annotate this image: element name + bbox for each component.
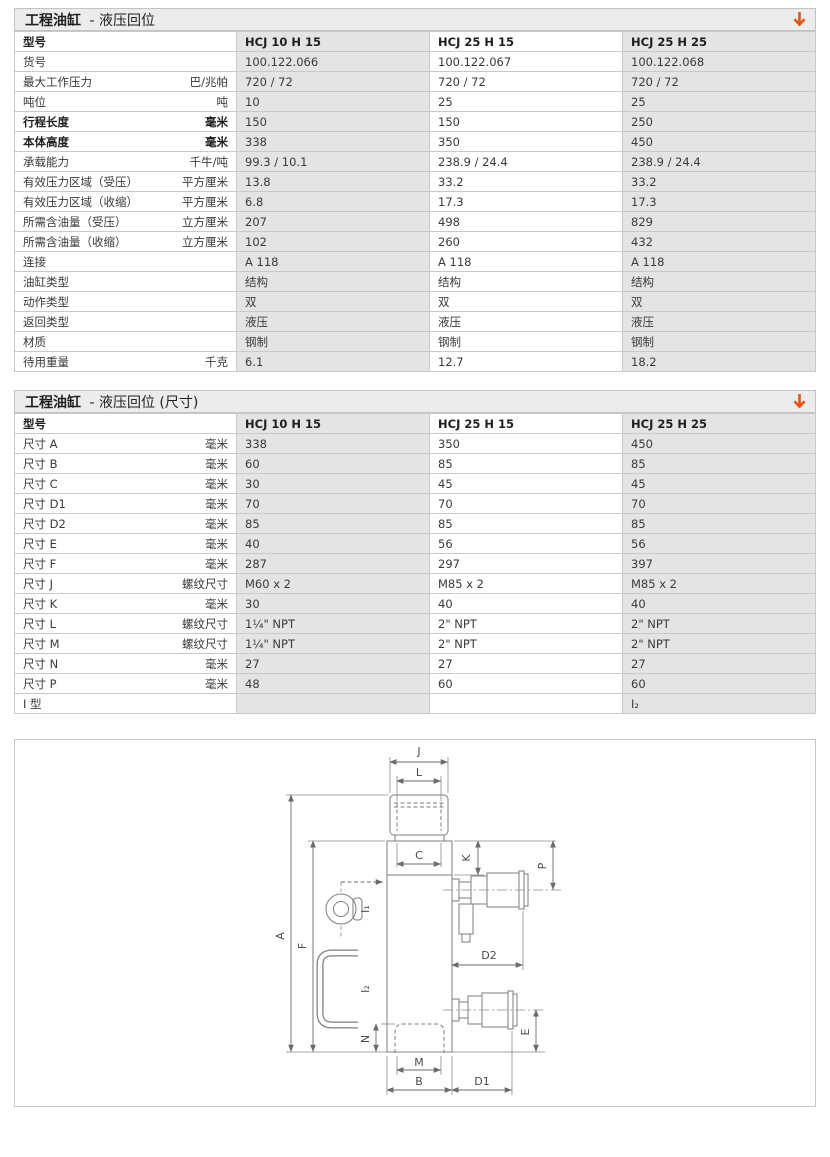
model-header-cell: 型号 [15, 414, 237, 434]
cell-value: 100.122.068 [623, 52, 816, 72]
cylinder-body [387, 841, 452, 1052]
column-header: HCJ 25 H 25 [623, 414, 816, 434]
spec-section: 工程油缸 - 液压回位 型号 HCJ 10 H 15 HCJ 25 H 15 H… [14, 8, 816, 372]
cell-value: 30 [237, 474, 430, 494]
cell-value: A 118 [430, 252, 623, 272]
table-row: 尺寸 N 毫米 27 27 27 [15, 654, 816, 674]
table-row: 本体高度 毫米 338 350 450 [15, 132, 816, 152]
row-label: 尺寸 L [23, 617, 56, 631]
cell-value: 85 [430, 514, 623, 534]
cell-value: 30 [237, 594, 430, 614]
cell-value: 60 [623, 674, 816, 694]
cell-value: 双 [237, 292, 430, 312]
dim-label-d1: D1 [474, 1075, 489, 1088]
cell-value: 结构 [237, 272, 430, 292]
cell-value: 338 [237, 132, 430, 152]
cell-value: 85 [430, 454, 623, 474]
cell-value: 498 [430, 212, 623, 232]
row-label: 尺寸 K [23, 597, 57, 611]
lifting-eye [326, 894, 356, 924]
column-header: HCJ 10 H 15 [237, 414, 430, 434]
row-label: 连接 [23, 255, 46, 269]
cell-value: 45 [430, 474, 623, 494]
table-row: 尺寸 D1 毫米 70 70 70 [15, 494, 816, 514]
row-unit: 毫米 [205, 476, 228, 492]
table-row: 尺寸 A 毫米 338 350 450 [15, 434, 816, 454]
upper-coupler [443, 871, 561, 942]
table-row: 油缸类型 结构 结构 结构 [15, 272, 816, 292]
cell-value: 双 [623, 292, 816, 312]
dim-label-d2: D2 [481, 949, 496, 962]
cell-value: 25 [430, 92, 623, 112]
row-unit: 千牛/吨 [190, 154, 228, 170]
row-unit: 毫米 [205, 656, 228, 672]
cell-value: 17.3 [623, 192, 816, 212]
section-title-product: 工程油缸 [25, 13, 81, 29]
cell-value: 33.2 [430, 172, 623, 192]
table-row: 货号 100.122.066 100.122.067 100.122.068 [15, 52, 816, 72]
cell-value: A 118 [237, 252, 430, 272]
table-row: 连接 A 118 A 118 A 118 [15, 252, 816, 272]
section-title-bar: 工程油缸 - 液压回位 (尺寸) [14, 390, 816, 413]
table-header-row: 型号 HCJ 10 H 15 HCJ 25 H 15 HCJ 25 H 25 [15, 414, 816, 434]
cell-value: 钢制 [237, 332, 430, 352]
column-header: HCJ 10 H 15 [237, 32, 430, 52]
row-unit: 毫米 [205, 676, 228, 692]
dim-label-e: E [519, 1028, 532, 1035]
cell-value: 10 [237, 92, 430, 112]
cell-value: 33.2 [623, 172, 816, 192]
cell-value: 27 [237, 654, 430, 674]
base-thread-hidden [395, 1024, 444, 1053]
dim-label-f: F [296, 943, 309, 949]
row-label: 尺寸 A [23, 437, 58, 451]
cell-value: 70 [623, 494, 816, 514]
row-unit: 毫米 [205, 516, 228, 532]
dim-label-p: P [536, 862, 549, 869]
dimension-lines: J L C K P [274, 745, 556, 1095]
table-row: 尺寸 M 螺纹尺寸 1¼" NPT 2" NPT 2" NPT [15, 634, 816, 654]
cell-value: 250 [623, 112, 816, 132]
row-label: 材质 [23, 335, 46, 349]
table-header-row: 型号 HCJ 10 H 15 HCJ 25 H 15 HCJ 25 H 25 [15, 32, 816, 52]
column-header: HCJ 25 H 15 [430, 32, 623, 52]
dim-label-c: C [415, 849, 423, 862]
cell-value: 100.122.067 [430, 52, 623, 72]
cell-value: 6.8 [237, 192, 430, 212]
cell-value: 238.9 / 24.4 [430, 152, 623, 172]
row-unit: 平方厘米 [182, 194, 228, 210]
row-unit: 螺纹尺寸 [182, 616, 228, 632]
row-label: 动作类型 [23, 295, 69, 309]
table-row: 尺寸 F 毫米 287 297 397 [15, 554, 816, 574]
cell-value: 238.9 / 24.4 [623, 152, 816, 172]
row-label: 货号 [23, 55, 46, 69]
carry-handle [320, 953, 358, 1025]
cylinder-technical-drawing: J L C K P [15, 740, 815, 1106]
row-unit: 毫米 [205, 456, 228, 472]
cell-value: 1¼" NPT [237, 614, 430, 634]
cell-value: 85 [623, 514, 816, 534]
row-unit: 毫米 [205, 134, 228, 150]
section-title: 工程油缸 - 液压回位 [25, 10, 155, 30]
cell-value: 720 / 72 [237, 72, 430, 92]
cell-value: 结构 [430, 272, 623, 292]
row-label: 有效压力区域（受压） [23, 175, 138, 189]
table-row: 吨位 吨 10 25 25 [15, 92, 816, 112]
cell-value: 397 [623, 554, 816, 574]
row-unit: 千克 [205, 354, 228, 370]
dim-label-b: B [415, 1075, 423, 1088]
row-unit: 毫米 [205, 496, 228, 512]
table-row: 所需含油量（收缩） 立方厘米 102 260 432 [15, 232, 816, 252]
section-title-variant: - 液压回位 (尺寸) [89, 395, 198, 411]
row-label: 最大工作压力 [23, 75, 92, 89]
row-label: 尺寸 D2 [23, 517, 66, 531]
section-title-variant: - 液压回位 [89, 13, 155, 29]
dim-label-k: K [460, 854, 473, 862]
table-row: 尺寸 P 毫米 48 60 60 [15, 674, 816, 694]
down-arrow-icon [792, 393, 807, 411]
row-unit: 毫米 [205, 556, 228, 572]
jump-down-arrow-button[interactable] [790, 11, 809, 29]
cell-value: 260 [430, 232, 623, 252]
down-arrow-icon [792, 11, 807, 29]
table-row: 有效压力区域（受压） 平方厘米 13.8 33.2 33.2 [15, 172, 816, 192]
cell-value: 液压 [237, 312, 430, 332]
cell-value: 钢制 [623, 332, 816, 352]
cell-value: 48 [237, 674, 430, 694]
row-label: 本体高度 [23, 135, 69, 149]
row-label: 所需含油量（收缩） [23, 235, 127, 249]
cell-value: 60 [237, 454, 430, 474]
table-row: 动作类型 双 双 双 [15, 292, 816, 312]
dim-label-i2: I₂ [359, 985, 372, 993]
table-row: 尺寸 L 螺纹尺寸 1¼" NPT 2" NPT 2" NPT [15, 614, 816, 634]
cell-value: 150 [237, 112, 430, 132]
dim-label-i1: I₁ [359, 905, 372, 913]
row-unit: 毫米 [205, 436, 228, 452]
cell-value: 钢制 [430, 332, 623, 352]
row-label: 承载能力 [23, 155, 69, 169]
cell-value: 40 [623, 594, 816, 614]
cell-value: 25 [623, 92, 816, 112]
cell-value: 40 [237, 534, 430, 554]
cell-value [237, 694, 430, 714]
row-label: 行程长度 [23, 115, 69, 129]
cell-value [430, 694, 623, 714]
column-header: HCJ 25 H 25 [623, 32, 816, 52]
cell-value: 45 [623, 474, 816, 494]
cell-value: 27 [623, 654, 816, 674]
dim-label-l: L [416, 766, 423, 779]
table-row: 返回类型 液压 液压 液压 [15, 312, 816, 332]
row-unit: 立方厘米 [182, 234, 228, 250]
table-row: 尺寸 J 螺纹尺寸 M60 x 2 M85 x 2 M85 x 2 [15, 574, 816, 594]
cell-value: 1¼" NPT [237, 634, 430, 654]
dimensions-section: 工程油缸 - 液压回位 (尺寸) 型号 HCJ 10 H 15 HCJ 25 H… [14, 390, 816, 714]
row-label: 尺寸 B [23, 457, 58, 471]
cell-value: I₂ [623, 694, 816, 714]
spec-table-performance: 型号 HCJ 10 H 15 HCJ 25 H 15 HCJ 25 H 25 货… [14, 31, 816, 372]
cell-value: A 118 [623, 252, 816, 272]
row-unit: 螺纹尺寸 [182, 576, 228, 592]
cell-value: 432 [623, 232, 816, 252]
cell-value: 70 [237, 494, 430, 514]
cell-value: 102 [237, 232, 430, 252]
row-label: 尺寸 J [23, 577, 53, 591]
cell-value: M85 x 2 [623, 574, 816, 594]
row-label: 尺寸 D1 [23, 497, 66, 511]
cell-value: 85 [237, 514, 430, 534]
cell-value: 350 [430, 132, 623, 152]
row-label: 油缸类型 [23, 275, 69, 289]
row-label: 尺寸 E [23, 537, 57, 551]
row-unit: 立方厘米 [182, 214, 228, 230]
table-row: 尺寸 E 毫米 40 56 56 [15, 534, 816, 554]
row-unit: 毫米 [205, 114, 228, 130]
cell-value: 450 [623, 132, 816, 152]
cell-value: 13.8 [237, 172, 430, 192]
table-row: 尺寸 K 毫米 30 40 40 [15, 594, 816, 614]
row-label: 尺寸 F [23, 557, 56, 571]
row-label: 尺寸 P [23, 677, 57, 691]
cell-value: 70 [430, 494, 623, 514]
saddle-outline [390, 795, 448, 835]
model-header-cell: 型号 [15, 32, 237, 52]
row-unit: 巴/兆帕 [190, 74, 228, 90]
table-row: 所需含油量（受压） 立方厘米 207 498 829 [15, 212, 816, 232]
row-unit: 平方厘米 [182, 174, 228, 190]
cell-value: 720 / 72 [430, 72, 623, 92]
table-row: 尺寸 B 毫米 60 85 85 [15, 454, 816, 474]
cell-value: 双 [430, 292, 623, 312]
row-label: 有效压力区域（收缩） [23, 195, 138, 209]
cell-value: 338 [237, 434, 430, 454]
row-unit: 螺纹尺寸 [182, 636, 228, 652]
cell-value: 56 [430, 534, 623, 554]
table-row: 材质 钢制 钢制 钢制 [15, 332, 816, 352]
table-row: 尺寸 C 毫米 30 45 45 [15, 474, 816, 494]
cell-value: 150 [430, 112, 623, 132]
cell-value: 6.1 [237, 352, 430, 372]
spec-table-body: 型号 HCJ 10 H 15 HCJ 25 H 15 HCJ 25 H 25 尺… [15, 414, 816, 714]
spec-table-dimensions: 型号 HCJ 10 H 15 HCJ 25 H 15 HCJ 25 H 25 尺… [14, 413, 816, 714]
row-label: 尺寸 N [23, 657, 58, 671]
cell-value: 40 [430, 594, 623, 614]
column-header: HCJ 25 H 15 [430, 414, 623, 434]
cell-value: 60 [430, 674, 623, 694]
row-unit: 吨 [217, 94, 229, 110]
table-row: I 型 I₂ [15, 694, 816, 714]
table-row: 尺寸 D2 毫米 85 85 85 [15, 514, 816, 534]
cell-value: 2" NPT [430, 634, 623, 654]
dim-label-j: J [416, 745, 420, 758]
cell-value: 56 [623, 534, 816, 554]
table-row: 待用重量 千克 6.1 12.7 18.2 [15, 352, 816, 372]
cell-value: 350 [430, 434, 623, 454]
cell-value: 2" NPT [623, 634, 816, 654]
cell-value: 17.3 [430, 192, 623, 212]
row-label: I 型 [23, 697, 42, 711]
cell-value: 18.2 [623, 352, 816, 372]
row-label: 尺寸 M [23, 637, 60, 651]
dim-label-m: M [414, 1056, 424, 1069]
cell-value: 100.122.066 [237, 52, 430, 72]
cell-value: 99.3 / 10.1 [237, 152, 430, 172]
row-label: 尺寸 C [23, 477, 58, 491]
table-row: 承载能力 千牛/吨 99.3 / 10.1 238.9 / 24.4 238.9… [15, 152, 816, 172]
spec-table-body: 型号 HCJ 10 H 15 HCJ 25 H 15 HCJ 25 H 25 货… [15, 32, 816, 372]
dim-label-a: A [274, 932, 287, 940]
cell-value: 450 [623, 434, 816, 454]
cell-value: 297 [430, 554, 623, 574]
cell-value: 2" NPT [430, 614, 623, 634]
cell-value: M60 x 2 [237, 574, 430, 594]
table-row: 有效压力区域（收缩） 平方厘米 6.8 17.3 17.3 [15, 192, 816, 212]
cylinder-parts [320, 795, 561, 1053]
cell-value: 287 [237, 554, 430, 574]
lower-coupler [443, 991, 545, 1029]
technical-drawing-panel: J L C K P [14, 739, 816, 1107]
section-title: 工程油缸 - 液压回位 (尺寸) [25, 392, 198, 412]
cell-value: 12.7 [430, 352, 623, 372]
cell-value: 液压 [623, 312, 816, 332]
jump-down-arrow-button[interactable] [790, 393, 809, 411]
row-label: 返回类型 [23, 315, 69, 329]
cell-value: 液压 [430, 312, 623, 332]
saddle-collar [395, 835, 444, 841]
cell-value: 85 [623, 454, 816, 474]
table-row: 行程长度 毫米 150 150 250 [15, 112, 816, 132]
cell-value: 207 [237, 212, 430, 232]
dim-label-n: N [359, 1035, 372, 1043]
row-unit: 毫米 [205, 536, 228, 552]
cell-value: 结构 [623, 272, 816, 292]
cell-value: 27 [430, 654, 623, 674]
cell-value: 829 [623, 212, 816, 232]
cell-value: 2" NPT [623, 614, 816, 634]
row-label: 吨位 [23, 95, 46, 109]
cell-value: M85 x 2 [430, 574, 623, 594]
table-row: 最大工作压力 巴/兆帕 720 / 72 720 / 72 720 / 72 [15, 72, 816, 92]
row-unit: 毫米 [205, 596, 228, 612]
row-label: 待用重量 [23, 355, 69, 369]
row-label: 所需含油量（受压） [23, 215, 127, 229]
datasheet-page: 工程油缸 - 液压回位 型号 HCJ 10 H 15 HCJ 25 H 15 H… [0, 0, 830, 1157]
section-title-product: 工程油缸 [25, 395, 81, 411]
cell-value: 720 / 72 [623, 72, 816, 92]
section-title-bar: 工程油缸 - 液压回位 [14, 8, 816, 31]
